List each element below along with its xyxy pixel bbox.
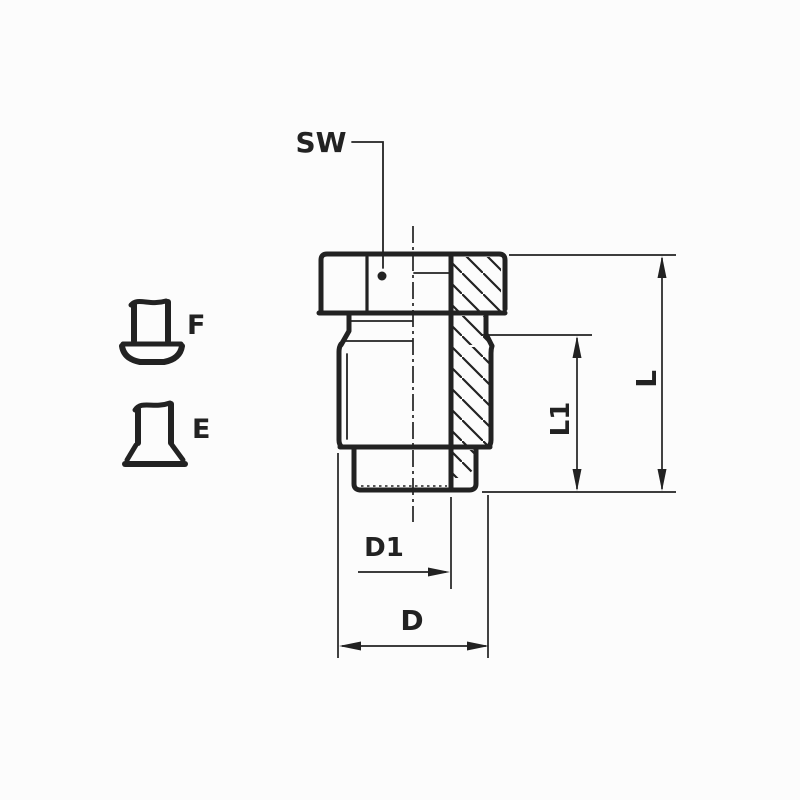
plug-section-view xyxy=(319,226,505,522)
l-label: L xyxy=(630,370,663,388)
section-hatch-body xyxy=(453,347,490,445)
d1-label: D1 xyxy=(364,533,404,563)
form-f-flange-bottom xyxy=(122,346,182,362)
d1-arrow-right xyxy=(428,568,450,577)
neck-right-edge xyxy=(486,313,492,346)
l-arrow-down xyxy=(658,469,667,491)
section-hatch-head xyxy=(453,257,501,311)
form-f-label: F xyxy=(187,310,205,341)
spigot-left-edge xyxy=(354,449,361,490)
l1-arrow-down xyxy=(573,469,582,491)
form-e-skirt-left xyxy=(127,445,136,460)
d-arrow-left xyxy=(339,642,361,651)
dimension-d1: D1 xyxy=(358,497,451,589)
drawing-page: F E xyxy=(0,0,800,800)
l1-arrow-up xyxy=(573,336,582,358)
d-arrow-right xyxy=(467,642,489,651)
sw-callout: SW xyxy=(295,126,386,281)
body-left-edge xyxy=(339,344,342,447)
form-e-skirt-right xyxy=(172,445,183,460)
dimension-l1: L1 xyxy=(481,335,592,491)
form-e-label: E xyxy=(192,414,210,445)
body-right-edge xyxy=(488,346,492,447)
form-e-symbol: E xyxy=(125,403,210,464)
sw-leader-dot xyxy=(378,272,387,281)
form-f-symbol: F xyxy=(122,301,205,362)
sw-label: SW xyxy=(295,126,346,159)
form-f-body-break-line xyxy=(131,301,166,305)
section-hatch-spigot xyxy=(453,450,475,478)
technical-drawing-canvas: F E xyxy=(0,0,800,800)
d-label: D xyxy=(400,604,423,637)
dimension-l: L xyxy=(482,255,676,492)
l-arrow-up xyxy=(658,256,667,278)
sw-leader-line xyxy=(352,142,383,268)
l1-label: L1 xyxy=(546,402,576,437)
